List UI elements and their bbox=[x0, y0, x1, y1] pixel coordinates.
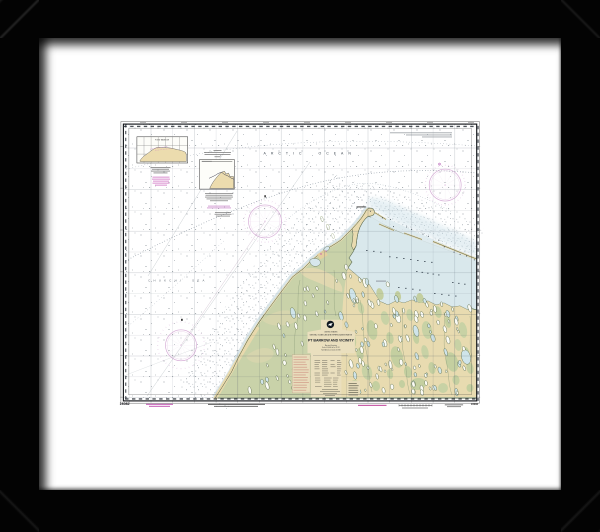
svg-text:POINT BARROW: POINT BARROW bbox=[155, 139, 169, 142]
svg-text:UNITED STATES: UNITED STATES bbox=[324, 331, 338, 334]
svg-text:PT BARROW AND VICINITY: PT BARROW AND VICINITY bbox=[308, 338, 355, 342]
svg-text:16082: 16082 bbox=[120, 402, 130, 406]
svg-text:CHUKCHI SEA: CHUKCHI SEA bbox=[148, 279, 208, 283]
svg-text:ARCTIC OCEAN: ARCTIC OCEAN bbox=[264, 151, 356, 155]
svg-text:16082: 16082 bbox=[471, 402, 479, 406]
